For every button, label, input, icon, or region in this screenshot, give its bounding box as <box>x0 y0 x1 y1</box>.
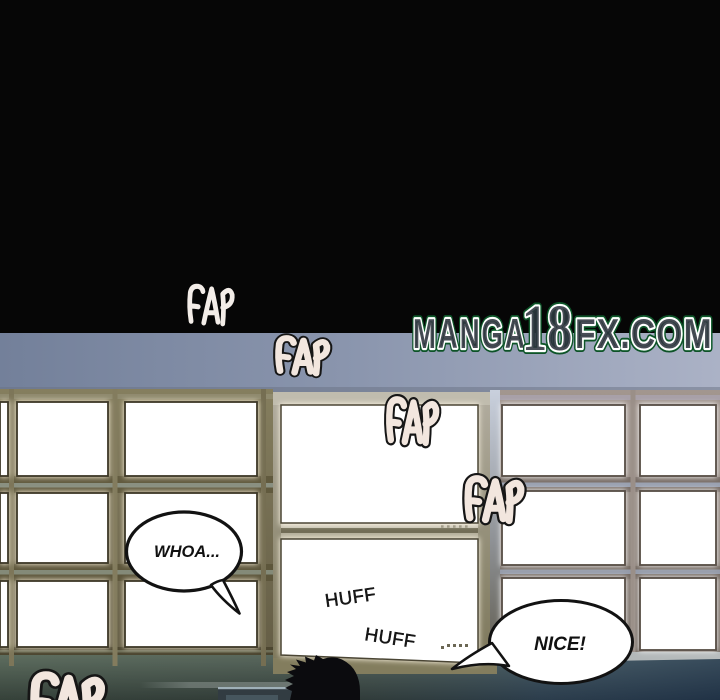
svg-text:NICE!: NICE! <box>534 634 586 655</box>
svg-text:WHOA...: WHOA... <box>154 543 220 561</box>
svg-text:MANGA: MANGA <box>413 310 527 357</box>
svg-text:18: 18 <box>522 291 572 364</box>
svg-text:FX.COM: FX.COM <box>575 312 713 358</box>
